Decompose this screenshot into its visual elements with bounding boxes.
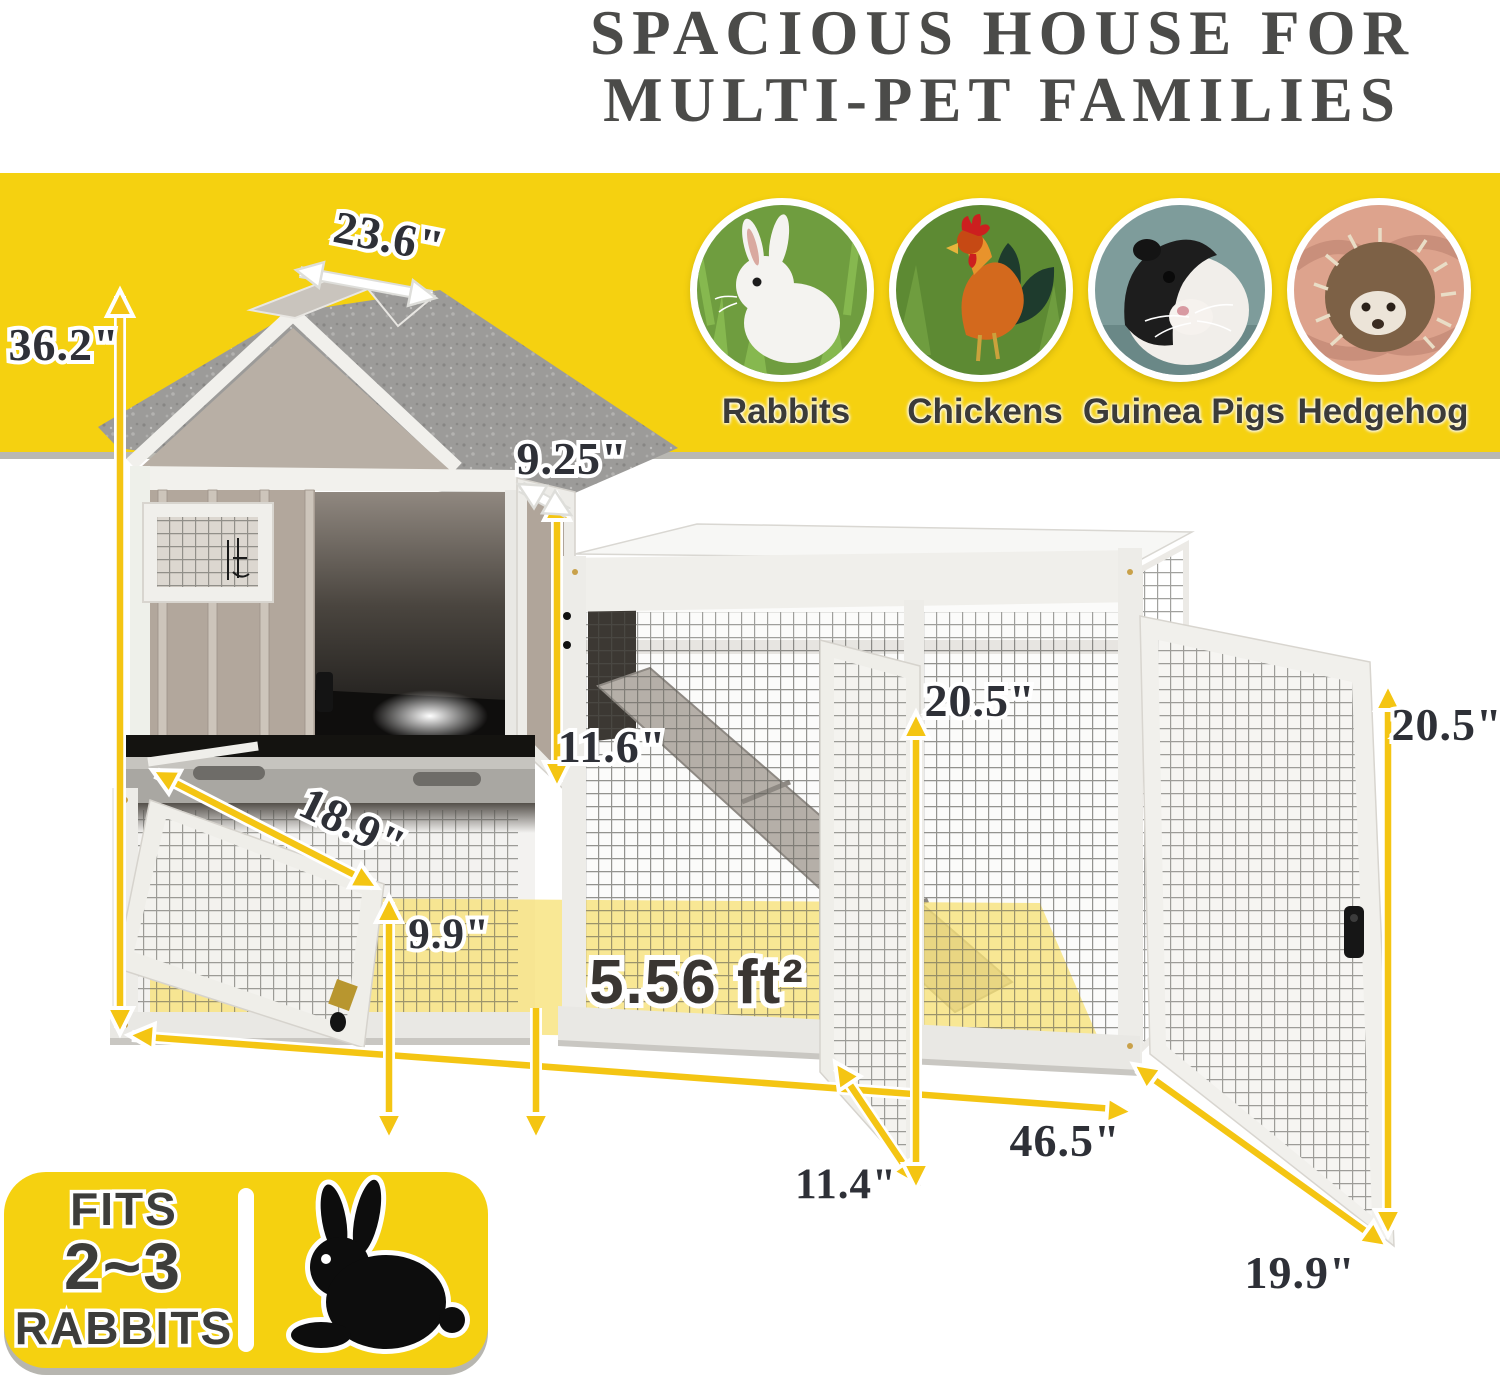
- badge-line-2: 2~3: [64, 1229, 182, 1303]
- upper-doorway: [315, 490, 517, 748]
- run-top-beam: [560, 550, 1140, 612]
- rabbit-eye: [321, 1254, 331, 1264]
- label-middle-door-width: 11.4": [795, 1161, 897, 1208]
- capacity-badge-art: FITS 2~3 RABBITS: [4, 1172, 488, 1368]
- right-door-latch: [1344, 906, 1364, 958]
- label-ground-clearance: 9.9": [408, 911, 490, 958]
- badge-line-1: FITS: [70, 1183, 178, 1235]
- label-upper-door-height: 11.6": [558, 721, 667, 772]
- label-total-height: 36.2": [8, 319, 119, 370]
- label-roof-depth: 23.6": [330, 201, 449, 272]
- badge-divider: [238, 1188, 254, 1352]
- capacity-badge: FITS 2~3 RABBITS: [4, 1172, 488, 1368]
- label-right-door-width: 19.9": [1244, 1247, 1355, 1298]
- product-infographic: { "title": {"line1": "SPACIOUS HOUSE FOR…: [0, 0, 1500, 1381]
- middle-door-open: [820, 640, 920, 1184]
- label-run-height-mid: 20.5": [924, 675, 1035, 726]
- floor-area-label: 5.56 ft²: [589, 948, 805, 1017]
- gable-trim: [133, 466, 517, 492]
- label-upper-door-depth: 9.25": [516, 433, 627, 484]
- run-left-post: [562, 556, 586, 1026]
- mesh-window: [143, 503, 273, 602]
- rabbit-silhouette-icon: [291, 1177, 465, 1349]
- door-latch: [316, 672, 333, 712]
- door-knob: [330, 1012, 346, 1032]
- run-right-post: [1118, 548, 1142, 1064]
- label-run-height-right: 20.5": [1391, 699, 1500, 750]
- right-door-open: [1140, 616, 1394, 1246]
- badge-line-3: RABBITS: [15, 1302, 233, 1354]
- label-run-length: 46.5": [1009, 1115, 1120, 1166]
